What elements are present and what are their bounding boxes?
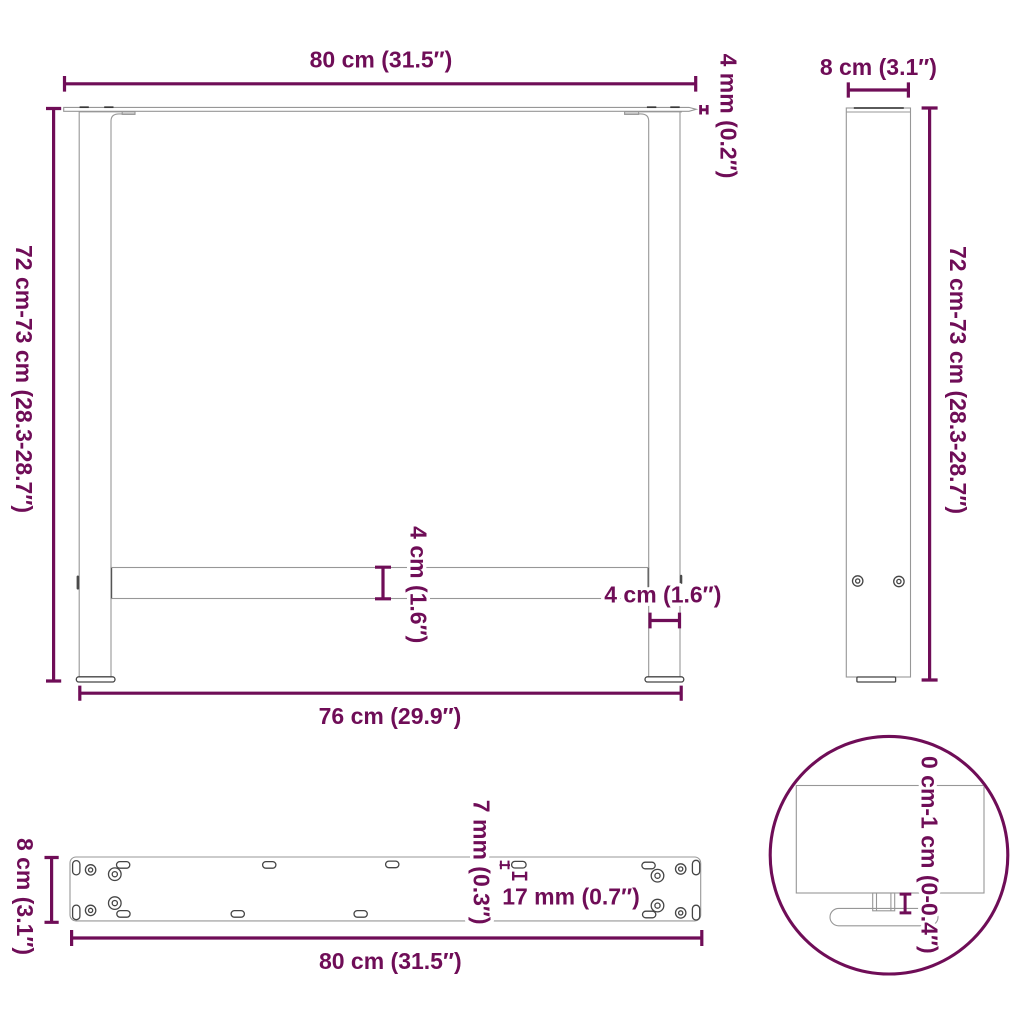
svg-text:72 cm-73 cm (28.3-28.7″): 72 cm-73 cm (28.3-28.7″) [945, 246, 971, 514]
svg-text:4 cm (1.6″): 4 cm (1.6″) [604, 582, 721, 608]
svg-text:4 mm (0.2″): 4 mm (0.2″) [716, 54, 742, 179]
svg-text:80 cm (31.5″): 80 cm (31.5″) [319, 948, 462, 974]
svg-text:0 cm-1 cm (0-0.4″): 0 cm-1 cm (0-0.4″) [917, 756, 943, 954]
svg-text:76 cm (29.9″): 76 cm (29.9″) [319, 703, 462, 729]
svg-text:17 mm (0.7″): 17 mm (0.7″) [502, 884, 640, 910]
svg-text:8 cm (3.1″): 8 cm (3.1″) [820, 54, 937, 80]
svg-text:4 cm (1.6″): 4 cm (1.6″) [406, 526, 432, 643]
svg-text:80 cm (31.5″): 80 cm (31.5″) [310, 47, 453, 73]
svg-text:72 cm-73 cm (28.3-28.7″): 72 cm-73 cm (28.3-28.7″) [11, 245, 37, 513]
svg-text:8 cm (3.1″): 8 cm (3.1″) [12, 838, 38, 955]
svg-text:7 mm (0.3″): 7 mm (0.3″) [469, 800, 495, 925]
